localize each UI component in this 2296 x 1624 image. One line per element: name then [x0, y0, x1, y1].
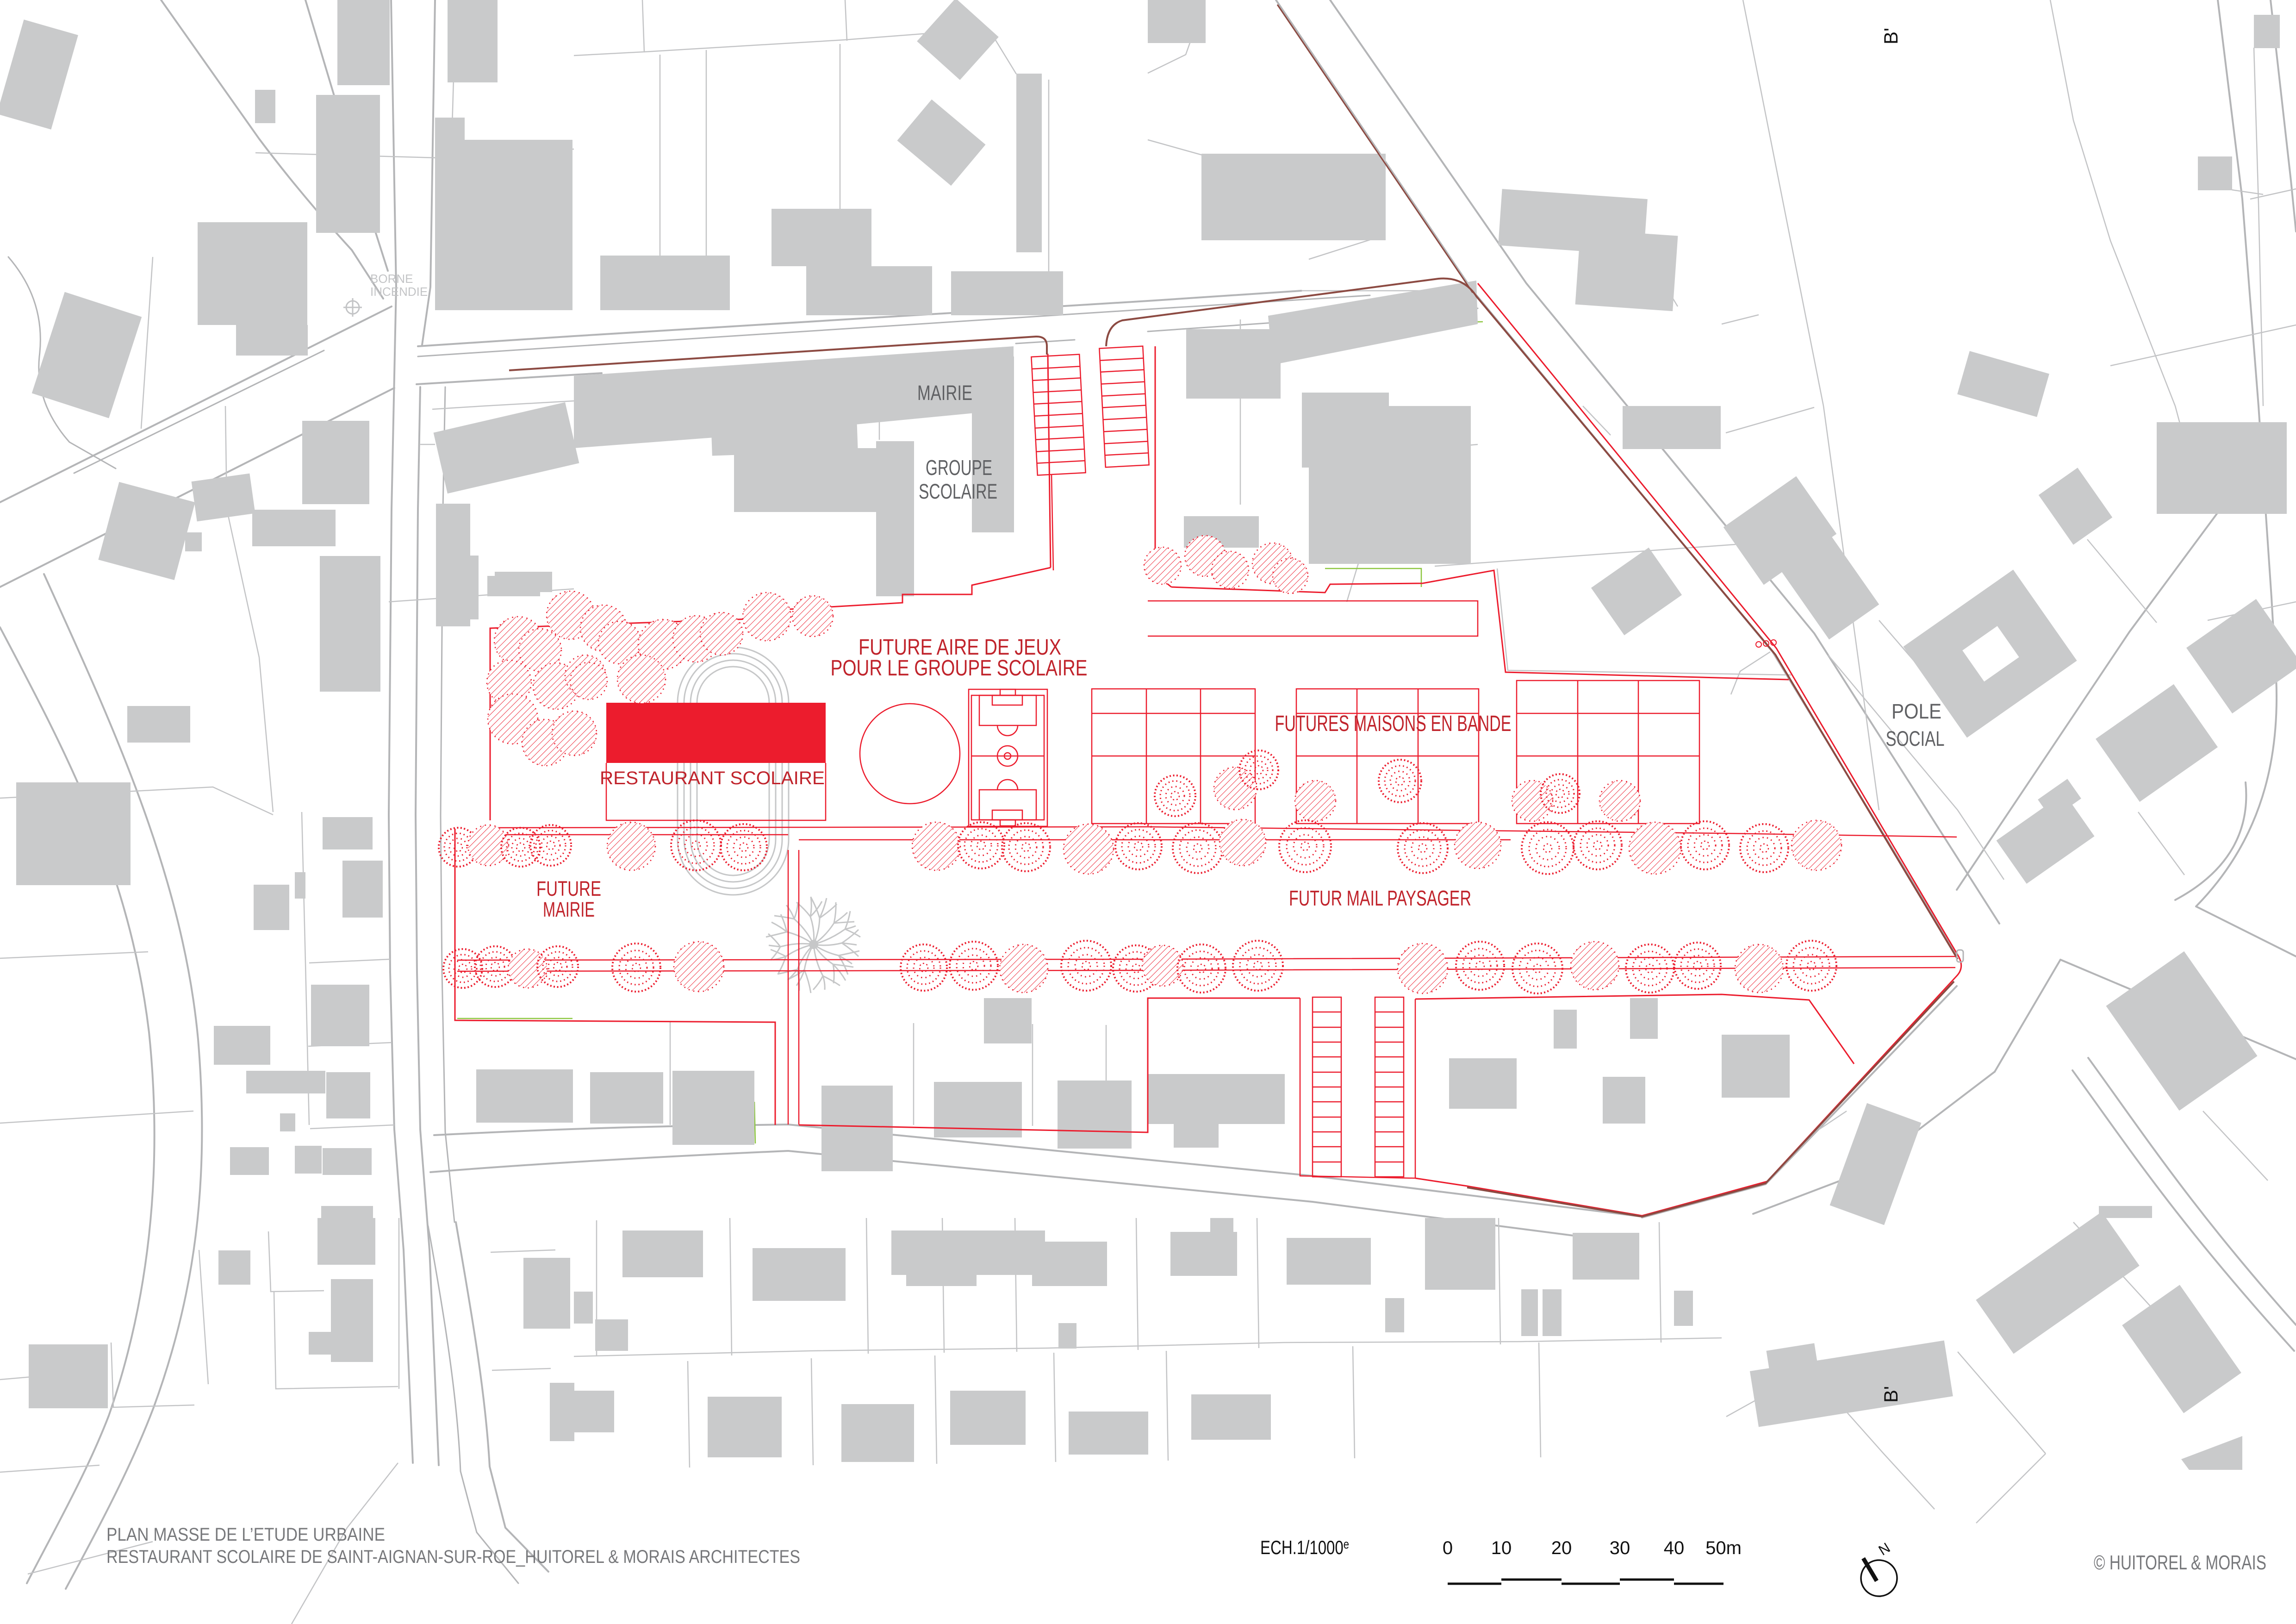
svg-text:BORNE: BORNE [370, 272, 413, 286]
svg-text:MAIRIE: MAIRIE [917, 381, 972, 405]
svg-text:FUTURE: FUTURE [536, 877, 601, 900]
svg-text:RESTAURANT SCOLAIRE: RESTAURANT SCOLAIRE [600, 768, 825, 788]
svg-text:ECH.1/1000e: ECH.1/1000e [1260, 1537, 1349, 1558]
svg-text:40: 40 [1664, 1538, 1685, 1558]
svg-text:0: 0 [1443, 1538, 1453, 1558]
svg-text:10: 10 [1491, 1538, 1512, 1558]
svg-text:30: 30 [1610, 1538, 1630, 1558]
svg-text:FUTUR MAIL PAYSAGER: FUTUR MAIL PAYSAGER [1289, 886, 1471, 910]
svg-text:POLE: POLE [1892, 700, 1941, 723]
svg-text:20: 20 [1551, 1538, 1572, 1558]
svg-text:POUR LE GROUPE SCOLAIRE: POUR LE GROUPE SCOLAIRE [831, 656, 1088, 681]
svg-text:SOCIAL: SOCIAL [1886, 727, 1945, 750]
svg-text:PLAN MASSE DE L’ETUDE URBAINE: PLAN MASSE DE L’ETUDE URBAINE [106, 1524, 385, 1545]
svg-text:FUTURES MAISONS EN BANDE: FUTURES MAISONS EN BANDE [1275, 712, 1512, 736]
svg-text:MAIRIE: MAIRIE [543, 898, 595, 921]
svg-text:INCENDIE: INCENDIE [370, 285, 428, 299]
svg-text:© HUITOREL & MORAIS: © HUITOREL & MORAIS [2094, 1551, 2266, 1574]
svg-text:B': B' [1880, 1386, 1902, 1403]
svg-text:50m: 50m [1705, 1538, 1742, 1558]
svg-text:RESTAURANT SCOLAIRE DE SAINT-A: RESTAURANT SCOLAIRE DE SAINT-AIGNAN-SUR-… [106, 1547, 800, 1567]
svg-text:GROUPE: GROUPE [926, 456, 992, 480]
svg-text:SCOLAIRE: SCOLAIRE [919, 480, 997, 503]
svg-text:B': B' [1880, 28, 1902, 44]
